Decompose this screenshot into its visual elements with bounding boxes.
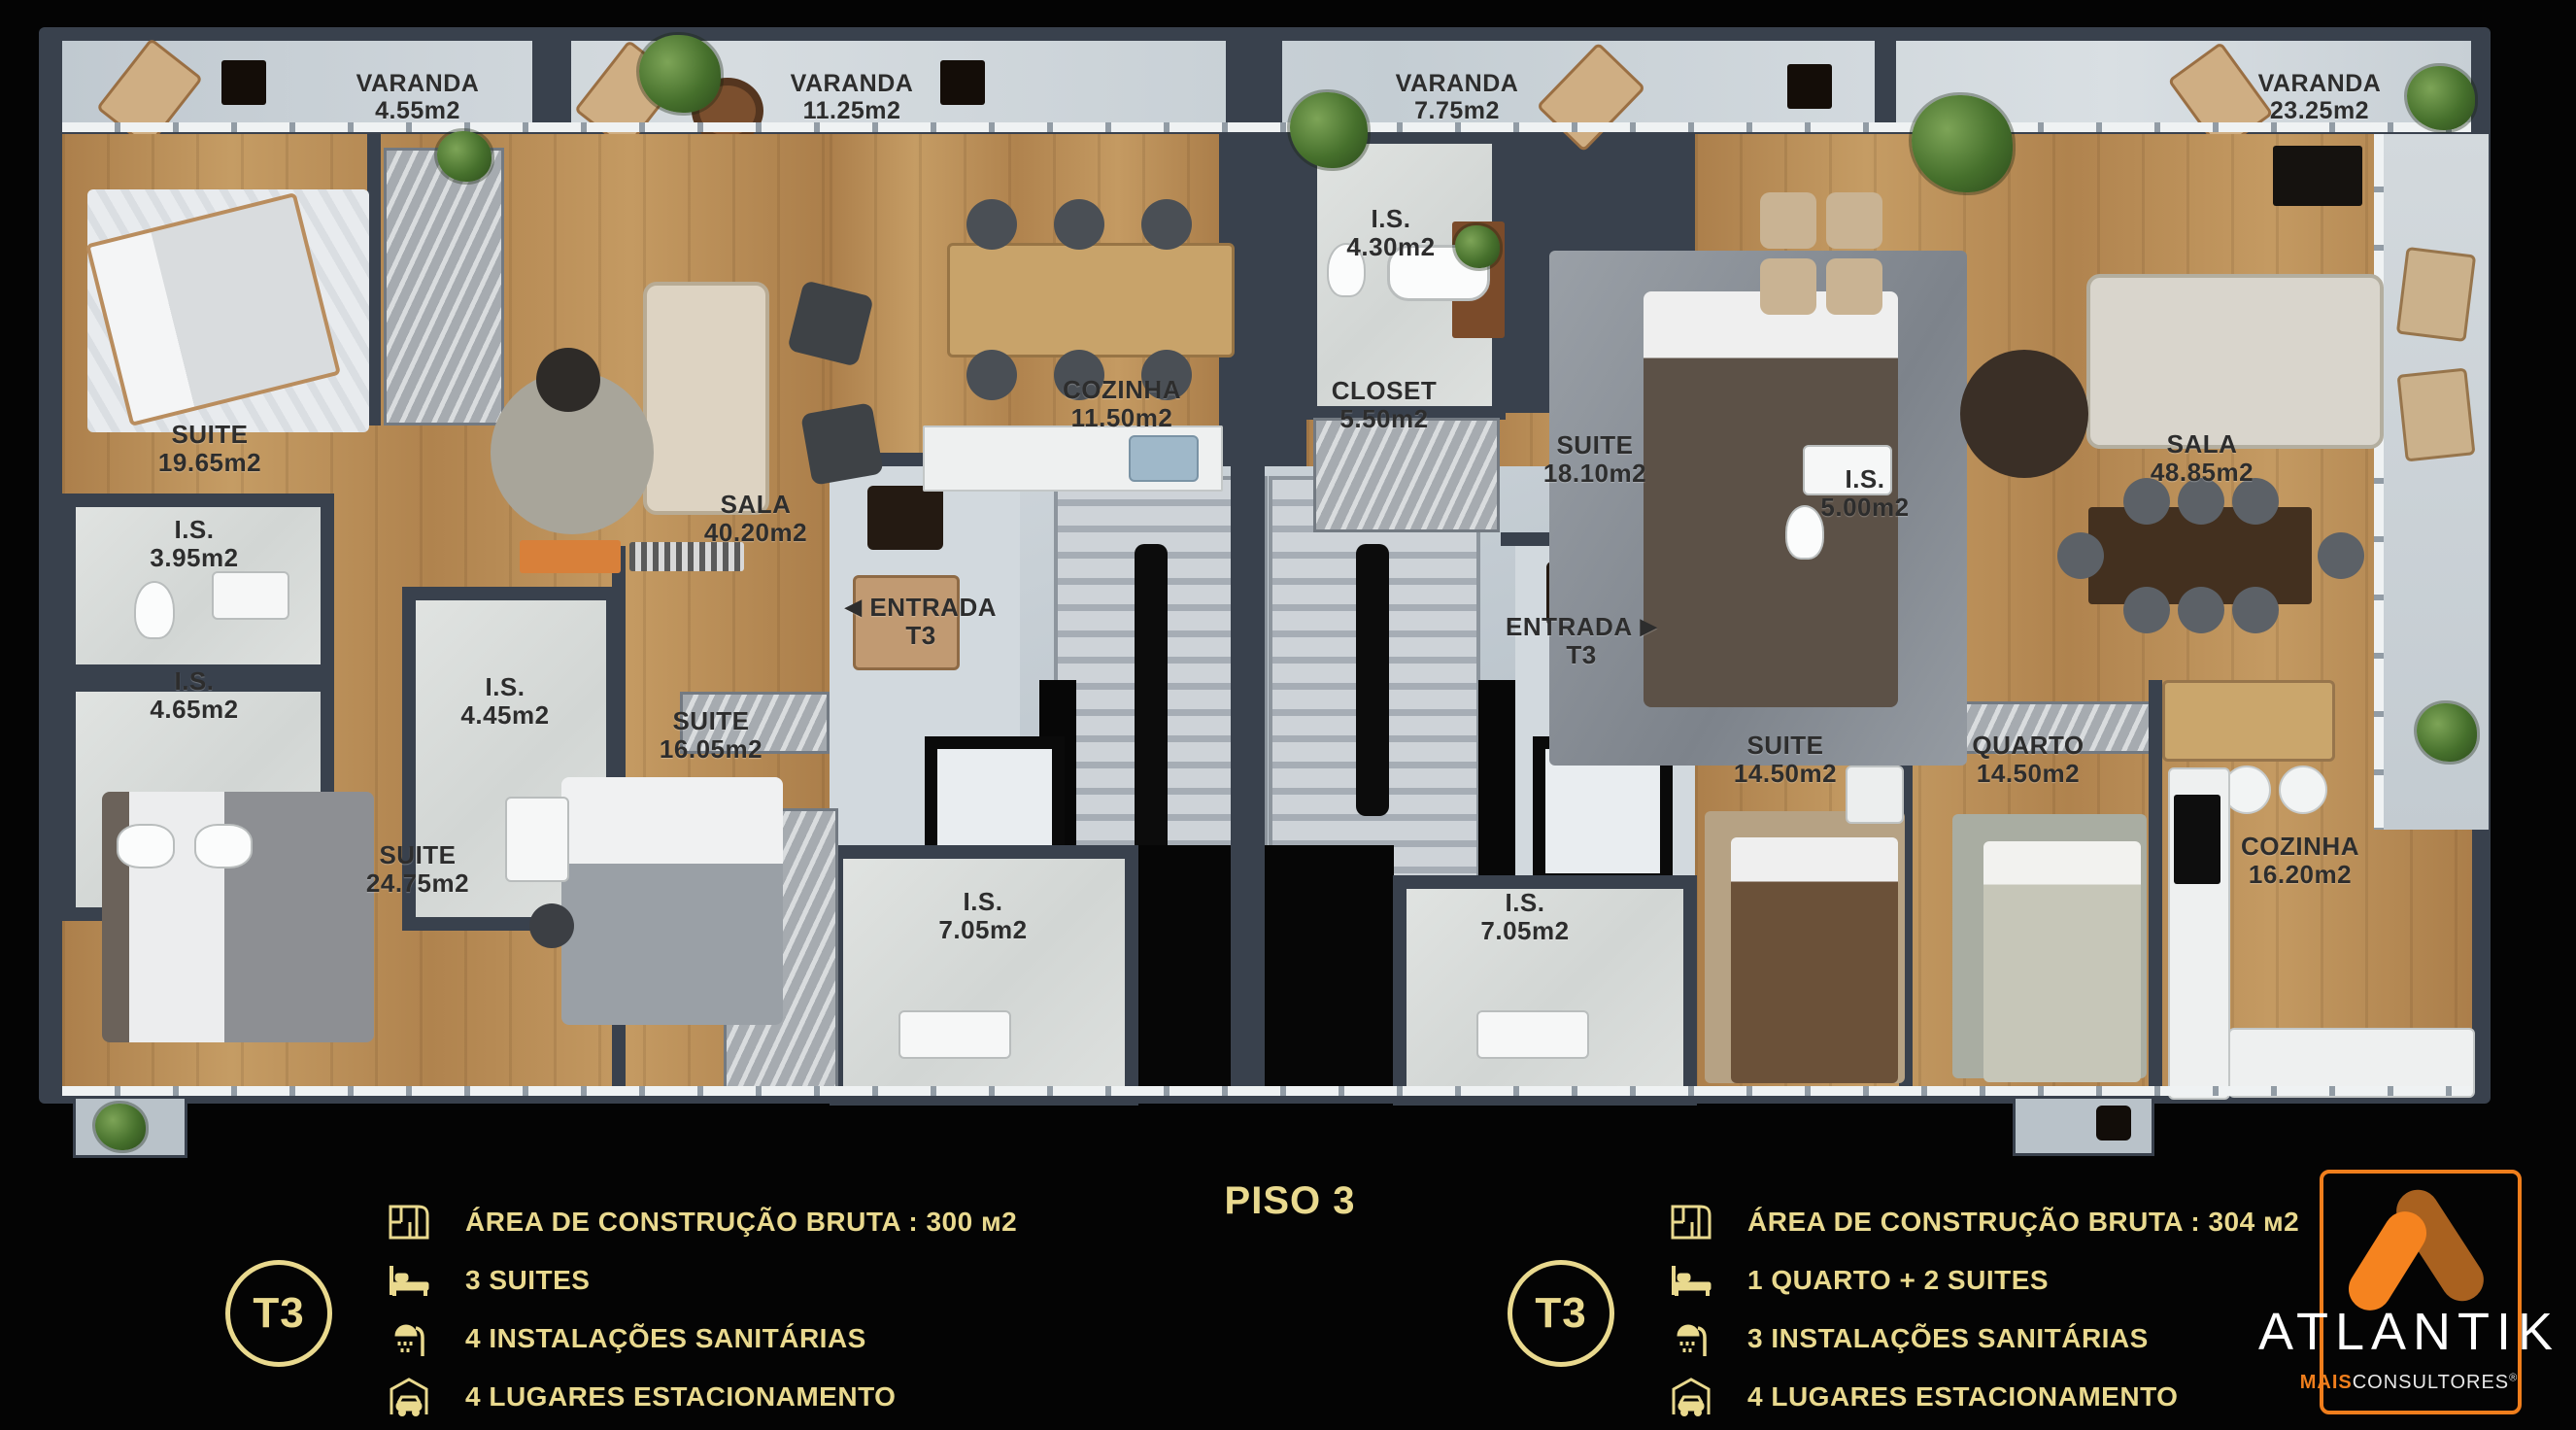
round-rug <box>1960 350 2088 478</box>
room-area: 24.75m2 <box>366 869 469 898</box>
stair-rail <box>1356 544 1389 816</box>
label-right-is-705: I.S. 7.05m2 <box>1480 889 1569 945</box>
room-name: VARANDA <box>2258 70 2382 97</box>
chair <box>2123 587 2170 633</box>
room-area: 7.05m2 <box>1480 917 1569 945</box>
label-varanda-3: VARANDA 7.75m2 <box>1396 70 1519 124</box>
room-area: 5.50m2 <box>1332 405 1437 433</box>
floor-plan-icon <box>384 1197 434 1247</box>
shower-icon <box>384 1313 434 1364</box>
garage-icon <box>1666 1372 1716 1422</box>
room-area: 4.30m2 <box>1346 233 1435 261</box>
legend-text: 1 QUARTO + 2 SUITES <box>1747 1265 2049 1296</box>
legend-item: 3 INSTALAÇÕES SANITÁRIAS <box>1666 1313 2299 1364</box>
terrace-window-line <box>2374 134 2384 830</box>
room-area: T3 <box>1506 641 1657 669</box>
room-area: 16.20m2 <box>2241 861 2359 889</box>
registered-mark: ® <box>2509 1372 2518 1383</box>
label-right-cozinha: COZINHA 16.20m2 <box>2241 833 2359 889</box>
label-right-is-430: I.S. 4.30m2 <box>1346 205 1435 261</box>
bed <box>1731 837 1898 1083</box>
label-left-sala: SALA 40.20m2 <box>704 491 807 547</box>
room-area: 14.50m2 <box>1734 760 1837 788</box>
room-name: I.S. <box>150 516 238 544</box>
room-name: I.S. <box>938 888 1027 916</box>
plant <box>1455 225 1500 268</box>
page-title: PISO 3 <box>1225 1179 1356 1223</box>
chair <box>1141 199 1192 250</box>
chair <box>966 350 1017 400</box>
pouf <box>1760 192 1816 249</box>
stair-rail <box>1135 544 1168 865</box>
side-table <box>221 60 266 105</box>
logo-a-mark <box>2339 1181 2494 1317</box>
legend-text: 4 INSTALAÇÕES SANITÁRIAS <box>465 1323 866 1354</box>
label-left-suite-24: SUITE 24.75m2 <box>366 841 469 898</box>
room-area: 4.45m2 <box>460 701 549 730</box>
label-right-closet: CLOSET 5.50m2 <box>1332 377 1437 433</box>
room-area: 23.25m2 <box>2258 97 2382 124</box>
legend-text: ÁREA DE CONSTRUÇÃO BRUTA : 304 м2 <box>1747 1207 2299 1238</box>
legend-right: ÁREA DE CONSTRUÇÃO BRUTA : 304 м2 1 QUAR… <box>1666 1197 2299 1430</box>
sofa <box>643 282 769 515</box>
window-line-bottom <box>62 1086 2471 1096</box>
bed-icon <box>384 1255 434 1306</box>
bed <box>561 777 783 1025</box>
chair <box>2178 587 2224 633</box>
label-right-quarto: QUARTO 14.50m2 <box>1972 732 2084 788</box>
entrada-arrow-icon: ◀ <box>845 596 862 620</box>
room-name: I.S. <box>1820 465 1909 494</box>
shower-icon <box>1666 1313 1716 1364</box>
room-name: VARANDA <box>356 70 480 97</box>
terrace-chair <box>2396 367 2475 461</box>
label-left-suite-19: SUITE 19.65m2 <box>158 421 261 477</box>
room-area: 7.05m2 <box>938 916 1027 944</box>
vanity <box>1476 1010 1589 1059</box>
legend-text: 4 LUGARES ESTACIONAMENTO <box>465 1381 896 1413</box>
room-name-row: ◀ ENTRADA <box>845 594 997 622</box>
interior-wall <box>367 134 381 426</box>
label-left-is-465: I.S. 4.65m2 <box>150 667 238 724</box>
label-left-is-445: I.S. 4.45m2 <box>460 673 549 730</box>
label-left-is-395: I.S. 3.95m2 <box>150 516 238 572</box>
label-right-suite-14: SUITE 14.50m2 <box>1734 732 1837 788</box>
room-name: CLOSET <box>1332 377 1437 405</box>
floor-plan-poster: VARANDA 4.55m2 VARANDA 11.25m2 VARANDA 7… <box>0 0 2576 1428</box>
toilet <box>1785 505 1824 560</box>
room-area: 14.50m2 <box>1972 760 2084 788</box>
logo-sub-rest: CONSULTORES <box>2353 1372 2509 1393</box>
pouf <box>529 903 574 948</box>
label-left-entrada: ◀ ENTRADA T3 <box>845 594 997 650</box>
room-name: SUITE <box>660 707 763 735</box>
room-name: I.S. <box>460 673 549 701</box>
bed <box>1983 841 2141 1082</box>
plant <box>95 1104 146 1150</box>
vanity <box>212 571 289 620</box>
legend-item: ÁREA DE CONSTRUÇÃO BRUTA : 300 м2 <box>384 1197 1017 1247</box>
legend-text: 3 INSTALAÇÕES SANITÁRIAS <box>1747 1323 2149 1354</box>
kitchen-sink <box>1129 435 1199 482</box>
room-name: SUITE <box>1734 732 1837 760</box>
legend-item: 4 LUGARES ESTACIONAMENTO <box>1666 1372 2299 1422</box>
room-name: I.S. <box>1346 205 1435 233</box>
bed-icon <box>1666 1255 1716 1306</box>
nightstand <box>1846 766 1904 824</box>
label-left-suite-16: SUITE 16.05m2 <box>660 707 763 764</box>
room-area: 18.10m2 <box>1543 460 1646 488</box>
wardrobe <box>384 148 504 426</box>
room-name: SALA <box>2151 430 2254 459</box>
armchair <box>800 402 884 486</box>
chair <box>1054 199 1104 250</box>
legend-text: ÁREA DE CONSTRUÇÃO BRUTA : 300 м2 <box>465 1207 1017 1238</box>
atlantik-logo: ATLANTIK MAISCONSULTORES® <box>2244 1154 2574 1421</box>
label-right-suite-18: SUITE 18.10m2 <box>1543 431 1646 488</box>
legend-item: 4 LUGARES ESTACIONAMENTO <box>384 1372 1017 1422</box>
plant <box>2417 703 2477 762</box>
logo-brand-text: ATLANTIK <box>2224 1302 2576 1362</box>
room-name: COZINHA <box>2241 833 2359 861</box>
legend-text: 3 SUITES <box>465 1265 590 1296</box>
room-name: SALA <box>704 491 807 519</box>
side-table <box>940 60 985 105</box>
vanity <box>898 1010 1011 1059</box>
legend-left: ÁREA DE CONSTRUÇÃO BRUTA : 300 м2 3 SUIT… <box>384 1197 1017 1430</box>
label-left-is-705: I.S. 7.05m2 <box>938 888 1027 944</box>
pouf <box>1760 258 1816 315</box>
room-area: 3.95m2 <box>150 544 238 572</box>
label-right-sala: SALA 48.85m2 <box>2151 430 2254 487</box>
logo-sub-accent: MAIS <box>2300 1372 2353 1393</box>
varanda-divider <box>1226 41 1282 130</box>
kitchen-island <box>2162 680 2335 762</box>
room-area: 16.05m2 <box>660 735 763 764</box>
vanity <box>505 797 569 882</box>
room-name: SUITE <box>158 421 261 449</box>
chair <box>966 199 1017 250</box>
room-area: T3 <box>845 622 997 650</box>
room-name: I.S. <box>1480 889 1569 917</box>
side-table <box>2096 1106 2131 1141</box>
room-area: 11.50m2 <box>1063 404 1181 432</box>
pouf <box>1826 192 1882 249</box>
media-console <box>520 540 621 573</box>
t3-badge-right: T3 <box>1508 1260 1614 1367</box>
center-divider-wall <box>1231 130 1265 1096</box>
legend-item: 1 QUARTO + 2 SUITES <box>1666 1255 2299 1306</box>
logo-subtitle: MAISCONSULTORES® <box>2244 1372 2574 1394</box>
room-name: VARANDA <box>791 70 914 97</box>
plant <box>2407 66 2475 130</box>
sofa <box>2086 274 2384 449</box>
room-name: VARANDA <box>1396 70 1519 97</box>
room-name: SUITE <box>1543 431 1646 460</box>
room-name: I.S. <box>150 667 238 696</box>
room-area: 11.25m2 <box>791 97 914 124</box>
room-name: ENTRADA <box>869 594 997 622</box>
legend-text: 4 LUGARES ESTACIONAMENTO <box>1747 1381 2178 1413</box>
chair <box>2318 532 2364 579</box>
t3-badge-left: T3 <box>225 1260 332 1367</box>
label-left-cozinha: COZINHA 11.50m2 <box>1063 376 1181 432</box>
chair <box>2232 587 2279 633</box>
dining-table <box>947 243 1235 357</box>
label-varanda-2: VARANDA 11.25m2 <box>791 70 914 124</box>
pouf <box>1826 258 1882 315</box>
side-table <box>1787 64 1832 109</box>
room-area: 40.20m2 <box>704 519 807 547</box>
room-name: SUITE <box>366 841 469 869</box>
legend-item: 3 SUITES <box>384 1255 1017 1306</box>
room-area: 48.85m2 <box>2151 459 2254 487</box>
washbasin <box>117 824 175 868</box>
varanda-divider <box>1875 41 1896 130</box>
entrada-arrow-icon: ▶ <box>1641 615 1657 639</box>
interior-wall <box>2149 680 2162 1096</box>
varanda-divider <box>532 41 571 130</box>
label-varanda-1: VARANDA 4.55m2 <box>356 70 480 124</box>
washbasin <box>194 824 253 868</box>
legend-item: 4 INSTALAÇÕES SANITÁRIAS <box>384 1313 1017 1364</box>
room-name: QUARTO <box>1972 732 2084 760</box>
plant <box>437 131 491 182</box>
room-area: 5.00m2 <box>1820 494 1909 522</box>
legend-item: ÁREA DE CONSTRUÇÃO BRUTA : 304 м2 <box>1666 1197 2299 1247</box>
toilet <box>134 581 175 639</box>
floor-plan-icon <box>1666 1197 1716 1247</box>
room-area: 4.55m2 <box>356 97 480 124</box>
garage-icon <box>384 1372 434 1422</box>
stool <box>2279 766 2327 814</box>
label-right-entrada: ENTRADA ▶ T3 <box>1506 613 1657 669</box>
room-area: 7.75m2 <box>1396 97 1519 124</box>
closet-wardrobe <box>1313 418 1500 532</box>
chair <box>2057 532 2104 579</box>
tv-unit <box>2273 146 2362 206</box>
coffee-table <box>536 348 600 412</box>
room-name: ENTRADA <box>1506 613 1633 641</box>
room-area: 19.65m2 <box>158 449 261 477</box>
label-varanda-4: VARANDA 23.25m2 <box>2258 70 2382 124</box>
label-right-is-500: I.S. 5.00m2 <box>1820 465 1909 522</box>
room-area: 4.65m2 <box>150 696 238 724</box>
bottom-balcony <box>2013 1096 2154 1156</box>
terrace-chair <box>2396 247 2476 342</box>
cooktop <box>2174 795 2220 884</box>
room-name-row: ENTRADA ▶ <box>1506 613 1657 641</box>
door-mat <box>867 486 943 550</box>
room-name: COZINHA <box>1063 376 1181 404</box>
